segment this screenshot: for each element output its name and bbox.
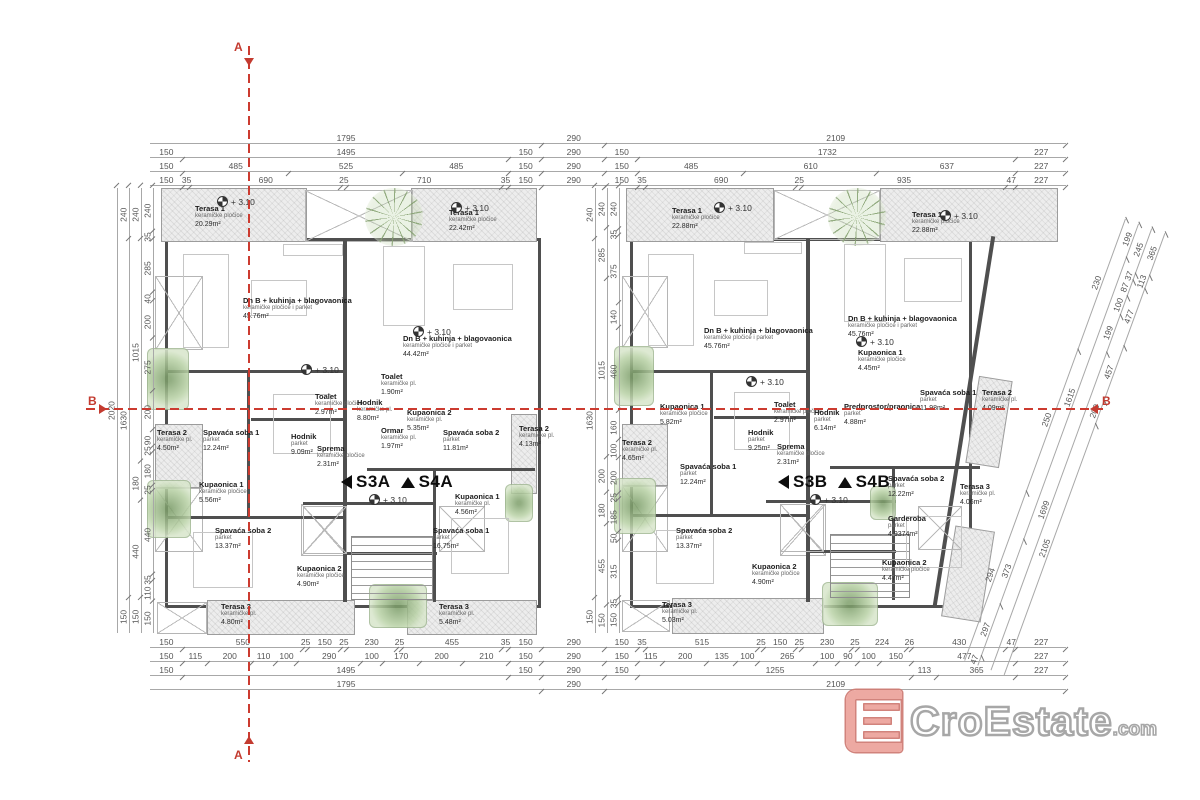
room-label: Kupaonica 2keramičke pločice4.47m² bbox=[882, 558, 930, 584]
logo-name: CroEstate bbox=[910, 698, 1113, 744]
dimension-value: 265 bbox=[758, 648, 816, 661]
room-label: Terasa 2keramičke pl.4.13m² bbox=[519, 424, 554, 450]
furniture bbox=[844, 244, 886, 322]
dimension-value: 1630 bbox=[118, 241, 129, 600]
dimension-value: 150 bbox=[150, 634, 183, 647]
dimension-value: 440 bbox=[130, 503, 141, 600]
dimension-value: 2109 bbox=[605, 676, 1066, 689]
room-label: Kupaonica 2keramičke pločice4.90m² bbox=[752, 562, 800, 588]
room-label: Spavaća soba 1parket12.24m² bbox=[680, 462, 736, 488]
dimension-chain: 17952902109 bbox=[150, 676, 1066, 690]
level-marker-icon bbox=[369, 494, 380, 505]
dimension-value: 150 bbox=[509, 662, 542, 675]
dimension-value: 690 bbox=[190, 172, 341, 185]
furniture bbox=[383, 246, 425, 326]
dimension-value: 100 bbox=[361, 648, 383, 661]
level-value: + 3.10 bbox=[465, 203, 489, 213]
room-label: Terasa 3keramičke pl.4.06m² bbox=[960, 482, 995, 508]
room-label: Hodnikparket9.09m² bbox=[291, 432, 316, 458]
level-marker: + 3.10 bbox=[413, 326, 451, 337]
furniture bbox=[904, 258, 962, 302]
room-label: Spremakeramičke pločice2.31m² bbox=[777, 442, 825, 468]
level-value: + 3.10 bbox=[954, 211, 978, 221]
wall bbox=[710, 370, 713, 516]
unit-label-s3b-s4b: S3B S4B bbox=[778, 472, 890, 492]
level-marker-icon bbox=[746, 376, 757, 387]
dimension-value: 150 bbox=[308, 634, 341, 647]
dimension-chain: 15014951502901501255113365227 bbox=[150, 662, 1066, 676]
dimension-value: 150 bbox=[150, 648, 183, 661]
dimension-value: 440 bbox=[142, 493, 153, 577]
furniture bbox=[453, 264, 513, 310]
section-arrow-a-bottom-icon bbox=[244, 736, 254, 744]
dimension-value: 1795 bbox=[150, 130, 542, 143]
level-value: + 3.10 bbox=[231, 197, 255, 207]
section-arrow-b-left-icon bbox=[99, 404, 107, 414]
level-value: + 3.10 bbox=[870, 337, 894, 347]
dimension-chain: 17952902109 bbox=[150, 130, 1066, 144]
level-marker: + 3.10 bbox=[746, 376, 784, 387]
dimension-value: 224 bbox=[858, 634, 907, 647]
room-label: Hodnikparket6.14m² bbox=[814, 408, 839, 434]
section-line-a bbox=[248, 46, 250, 762]
room-label: Ormarkeramičke pl.1.97m² bbox=[381, 426, 416, 452]
dimension-value: 150 bbox=[509, 172, 542, 185]
dimension-chain: 2401630150 bbox=[584, 188, 596, 633]
room-label: Terasa 1keramičke pločice20.29m² bbox=[195, 204, 243, 230]
dimension-value: 375 bbox=[608, 238, 619, 306]
dimension-value: 150 bbox=[509, 144, 542, 157]
level-marker: + 3.10 bbox=[369, 494, 407, 505]
room-label: Spavaća soba 2parket13.37m² bbox=[676, 526, 732, 552]
dimension-value: 150 bbox=[605, 634, 638, 647]
wall bbox=[367, 468, 535, 471]
dimension-value: 150 bbox=[142, 604, 153, 633]
dimension-value: 185 bbox=[608, 501, 619, 534]
section-letter-b-right: B bbox=[1102, 394, 1111, 408]
dimension-chain: 2401015180440150 bbox=[130, 188, 142, 633]
dimension-block-bottom: 1505502515025230254553515029015035515251… bbox=[150, 634, 1066, 690]
room-label: Terasa 3keramičke pl.5.03m² bbox=[662, 600, 697, 626]
room-label: Kupaonica 1keramičke pl.4.56m² bbox=[455, 492, 500, 518]
dimension-chain: 2402851015200180455150 bbox=[596, 188, 608, 633]
dimension-value: 227 bbox=[1016, 648, 1066, 661]
dimension-chain: 150485525485150290150485610637227 bbox=[150, 158, 1066, 172]
level-value: + 3.10 bbox=[315, 365, 339, 375]
room-label: Dn B + kuhinja + blagovaonicakeramičke p… bbox=[403, 334, 512, 360]
level-value: + 3.10 bbox=[760, 377, 784, 387]
level-marker-icon bbox=[856, 336, 867, 347]
dimension-value: 200 bbox=[596, 459, 607, 494]
dimension-value: 150 bbox=[605, 662, 638, 675]
dimension-value: 200 bbox=[663, 648, 707, 661]
tree bbox=[828, 188, 886, 246]
dimension-chain: 1501152001101002901001702002101502901501… bbox=[150, 648, 1066, 662]
tree bbox=[365, 188, 423, 246]
room-label: Kupaonica 1keramičke pločice5.56m² bbox=[199, 480, 247, 506]
dimension-value: 935 bbox=[802, 172, 1006, 185]
level-marker: + 3.10 bbox=[940, 210, 978, 221]
room-label: Terasa 2keramičke pl.4.50m² bbox=[157, 428, 192, 454]
croestate-logo-icon bbox=[846, 690, 902, 752]
furniture bbox=[744, 242, 802, 254]
dimension-value: 1630 bbox=[584, 241, 595, 600]
level-marker: + 3.10 bbox=[856, 336, 894, 347]
plant bbox=[505, 484, 533, 522]
dimension-value: 240 bbox=[118, 188, 129, 241]
dimension-value: 710 bbox=[347, 172, 502, 185]
level-marker-icon bbox=[413, 326, 424, 337]
room-label: Hodnikkeramičke pl.8.80m² bbox=[357, 398, 392, 424]
dimension-value: 275 bbox=[142, 341, 153, 394]
room-label: Garderobaparket4.9374m² bbox=[888, 514, 926, 540]
room-label: Spavaća soba 2parket12.22m² bbox=[888, 474, 944, 500]
section-arrow-up-icon bbox=[838, 477, 852, 488]
dimension-value: 290 bbox=[297, 648, 360, 661]
level-marker-icon bbox=[714, 202, 725, 213]
room-label: Toaletkeramičke pl.1.90m² bbox=[381, 372, 416, 398]
room-label: Terasa 2keramičke pl.4.65m² bbox=[622, 438, 657, 464]
dimension-value: 150 bbox=[509, 158, 542, 171]
dimension-value: 230 bbox=[802, 634, 852, 647]
dimension-value: 180 bbox=[142, 454, 153, 488]
level-marker: + 3.10 bbox=[301, 364, 339, 375]
section-arrow-b-right-icon bbox=[1090, 404, 1098, 414]
room-label: Dn B + kuhinja + blagovaonicakeramičke p… bbox=[704, 326, 813, 352]
dimension-value: 47 bbox=[1006, 172, 1016, 185]
level-marker-icon bbox=[217, 196, 228, 207]
dimension-value: 290 bbox=[542, 676, 605, 689]
unit-name: S3A bbox=[356, 472, 391, 492]
dimension-value: 115 bbox=[183, 648, 208, 661]
elevator-shaft bbox=[780, 504, 824, 552]
unit-name: S4B bbox=[856, 472, 891, 492]
dimension-value: 2109 bbox=[605, 130, 1066, 143]
dimension-block-top: 1795290210915014951502901501732227150485… bbox=[150, 130, 1066, 186]
room-label: Dn B + kuhinja + blagovaonicakeramičke p… bbox=[243, 296, 352, 322]
section-letter-a-bottom: A bbox=[234, 748, 243, 762]
dimension-value: 227 bbox=[1016, 158, 1066, 171]
dimension-value: 35 bbox=[502, 172, 510, 185]
dimension-value: 113 bbox=[912, 662, 937, 675]
room-label: Spremakeramičke pločice2.31m² bbox=[317, 444, 365, 470]
level-marker-icon bbox=[451, 202, 462, 213]
dimension-value: 515 bbox=[646, 634, 758, 647]
plant bbox=[614, 478, 656, 534]
level-marker-icon bbox=[810, 494, 821, 505]
dimension-value: 150 bbox=[150, 144, 183, 157]
dimension-value: 240 bbox=[130, 188, 141, 241]
section-arrow-left-icon bbox=[778, 475, 789, 489]
dimension-value: 35 bbox=[502, 634, 510, 647]
dimension-value: 100 bbox=[736, 648, 758, 661]
plant bbox=[614, 346, 654, 406]
dimension-value: 150 bbox=[764, 634, 797, 647]
floor-plan-left: Terasa 1keramičke pločice20.29m²Dn B + k… bbox=[155, 188, 547, 633]
dimension-value: 110 bbox=[252, 648, 276, 661]
dimension-value: 460 bbox=[608, 330, 619, 413]
dimension-value: 150 bbox=[509, 634, 542, 647]
dimension-chain: 24035375140460160100200251855031535150 bbox=[608, 188, 620, 633]
dimension-value: 135 bbox=[707, 648, 736, 661]
dimension-value: 485 bbox=[403, 158, 509, 171]
section-line-b bbox=[86, 408, 1108, 410]
dimension-value: 150 bbox=[608, 606, 619, 633]
dimension-value: 227 bbox=[1016, 144, 1066, 157]
dimension-value: 550 bbox=[183, 634, 303, 647]
dimension-value: 1495 bbox=[183, 144, 510, 157]
dimension-value: 150 bbox=[150, 662, 183, 675]
wall bbox=[830, 466, 980, 469]
dimension-block-left: 2020240163015024010151804401502403528540… bbox=[106, 188, 154, 633]
room-label: Toaletkeramičke pločice2.97m² bbox=[315, 392, 363, 418]
logo-tld: .com bbox=[1113, 719, 1157, 740]
level-marker: + 3.10 bbox=[451, 202, 489, 213]
room-label: Spavaća soba 1parket12.24m² bbox=[203, 428, 259, 454]
dimension-value: 200 bbox=[142, 303, 153, 341]
dimension-value: 150 bbox=[596, 607, 607, 633]
dimension-value: 35 bbox=[183, 172, 191, 185]
dimension-value: 200 bbox=[608, 460, 619, 496]
furniture bbox=[283, 244, 343, 256]
unit-name: S3B bbox=[793, 472, 828, 492]
level-marker-icon bbox=[940, 210, 951, 221]
room-label: Hodnikparket9.25m² bbox=[748, 428, 773, 454]
room-label: Terasa 3keramičke pl.5.48m² bbox=[439, 602, 474, 628]
section-arrow-a-top-icon bbox=[244, 58, 254, 66]
dimension-value: 180 bbox=[130, 464, 141, 504]
furniture bbox=[183, 254, 229, 348]
dimension-value: 290 bbox=[542, 634, 605, 647]
room-label: Kupaonica 2keramičke pločice4.90m² bbox=[297, 564, 345, 590]
dimension-chain: 2020 bbox=[106, 188, 118, 633]
section-letter-a-top: A bbox=[234, 40, 243, 54]
room-label: Spavaća soba 1parket16.75m² bbox=[433, 526, 489, 552]
elevator-shaft bbox=[303, 506, 347, 554]
section-arrow-left-icon bbox=[341, 475, 352, 489]
level-value: + 3.10 bbox=[728, 203, 752, 213]
level-marker-icon bbox=[301, 364, 312, 375]
room-label: Terasa 1keramičke pločice22.88m² bbox=[672, 206, 720, 232]
dimension-value: 35 bbox=[638, 634, 646, 647]
dimension-chain: 1505502515025230254553515029015035515251… bbox=[150, 634, 1066, 648]
section-arrow-up-icon bbox=[401, 477, 415, 488]
wall bbox=[630, 370, 806, 373]
dimension-value: 180 bbox=[596, 495, 607, 527]
dimension-value: 100 bbox=[858, 648, 880, 661]
dimension-value: 100 bbox=[816, 648, 838, 661]
dimension-value: 290 bbox=[542, 144, 605, 157]
dimension-value: 240 bbox=[584, 188, 595, 241]
unit-name: S4A bbox=[419, 472, 454, 492]
dimension-value: 455 bbox=[402, 634, 501, 647]
croestate-logo: CroEstate.com bbox=[846, 690, 1157, 752]
dimension-value: 1015 bbox=[596, 281, 607, 460]
dimension-value: 200 bbox=[420, 648, 464, 661]
room-label: Spavaća soba 2parket13.37m² bbox=[215, 526, 271, 552]
void-crossed-box bbox=[157, 602, 207, 634]
dimension-value: 150 bbox=[118, 600, 129, 633]
dimension-value: 2020 bbox=[106, 188, 117, 633]
dimension-chain: 15014951502901501732227 bbox=[150, 144, 1066, 158]
dimension-value: 1732 bbox=[638, 144, 1016, 157]
room-label: Kupaonica 1keramičke pločice4.45m² bbox=[858, 348, 906, 374]
section-letter-b-left: B bbox=[88, 394, 97, 408]
dimension-value: 160 bbox=[608, 413, 619, 442]
dimension-value: 485 bbox=[638, 158, 744, 171]
dimension-value: 285 bbox=[142, 241, 153, 295]
dimension-value: 290 bbox=[542, 158, 605, 171]
dimension-value: 230 bbox=[347, 634, 397, 647]
room-label: Spavaća soba 2parket11.81m² bbox=[443, 428, 499, 454]
dimension-value: 1495 bbox=[183, 662, 509, 675]
furniture bbox=[714, 280, 768, 316]
dimension-value: 637 bbox=[877, 158, 1016, 171]
dimension-value: 455 bbox=[596, 526, 607, 606]
dimension-value: 200 bbox=[208, 648, 252, 661]
room-label: Kupaonica 1keramičke pločice5.82m² bbox=[660, 402, 708, 428]
dimension-value: 210 bbox=[463, 648, 509, 661]
dimension-value: 1015 bbox=[130, 241, 141, 464]
dimension-value: 90 bbox=[838, 648, 858, 661]
dimension-value: 240 bbox=[608, 188, 619, 231]
level-marker: + 3.10 bbox=[810, 494, 848, 505]
dimension-value: 150 bbox=[130, 600, 141, 633]
dimension-chain: 240352854020027520090251802544035110150 bbox=[142, 188, 154, 633]
dimension-value: 285 bbox=[596, 230, 607, 280]
dimension-chain: 2401630150 bbox=[118, 188, 130, 633]
dimension-value: 150 bbox=[150, 158, 183, 171]
dimension-value: 1795 bbox=[150, 676, 542, 689]
level-value: + 3.10 bbox=[824, 495, 848, 505]
dimension-value: 150 bbox=[584, 600, 595, 633]
dimension-value: 240 bbox=[142, 188, 153, 234]
croestate-logo-text: CroEstate.com bbox=[910, 701, 1157, 742]
dimension-value: 227 bbox=[1016, 172, 1066, 185]
dimension-value: 290 bbox=[542, 662, 605, 675]
room-label: Terasa 3keramičke pl.4.80m² bbox=[221, 602, 256, 628]
room-label: Predprostor/praonicaparket4.88m² bbox=[844, 402, 920, 428]
dimension-value: 170 bbox=[383, 648, 420, 661]
dimension-value: 315 bbox=[608, 543, 619, 600]
dimension-value: 290 bbox=[542, 648, 605, 661]
dimension-value: 150 bbox=[605, 144, 638, 157]
level-value: + 3.10 bbox=[427, 327, 451, 337]
dimension-value: 35 bbox=[638, 172, 646, 185]
dimension-value: 150 bbox=[605, 158, 638, 171]
level-value: + 3.10 bbox=[383, 495, 407, 505]
dimension-value: 150 bbox=[509, 648, 542, 661]
dimension-value: 1255 bbox=[638, 662, 912, 675]
dimension-block-middle: 2401630150240285101520018045515024035375… bbox=[584, 188, 620, 633]
staircase bbox=[351, 536, 433, 600]
dimension-value: 610 bbox=[744, 158, 877, 171]
dimension-value: 525 bbox=[289, 158, 404, 171]
furniture bbox=[648, 254, 694, 346]
dimension-value: 150 bbox=[880, 648, 913, 661]
dimension-value: 485 bbox=[183, 158, 289, 171]
dimension-value: 240 bbox=[596, 188, 607, 230]
dimension-value: 227 bbox=[1016, 634, 1066, 647]
level-marker: + 3.10 bbox=[714, 202, 752, 213]
dimension-value: 290 bbox=[542, 130, 605, 143]
dimension-value: 690 bbox=[646, 172, 797, 185]
dimension-value: 115 bbox=[638, 648, 663, 661]
dimension-value: 227 bbox=[1016, 662, 1066, 675]
dimension-value: 150 bbox=[605, 648, 638, 661]
unit-label-s3a-s4a: S3A S4A bbox=[341, 472, 453, 492]
dimension-value: 200 bbox=[142, 393, 153, 431]
dimension-value: 100 bbox=[276, 648, 298, 661]
